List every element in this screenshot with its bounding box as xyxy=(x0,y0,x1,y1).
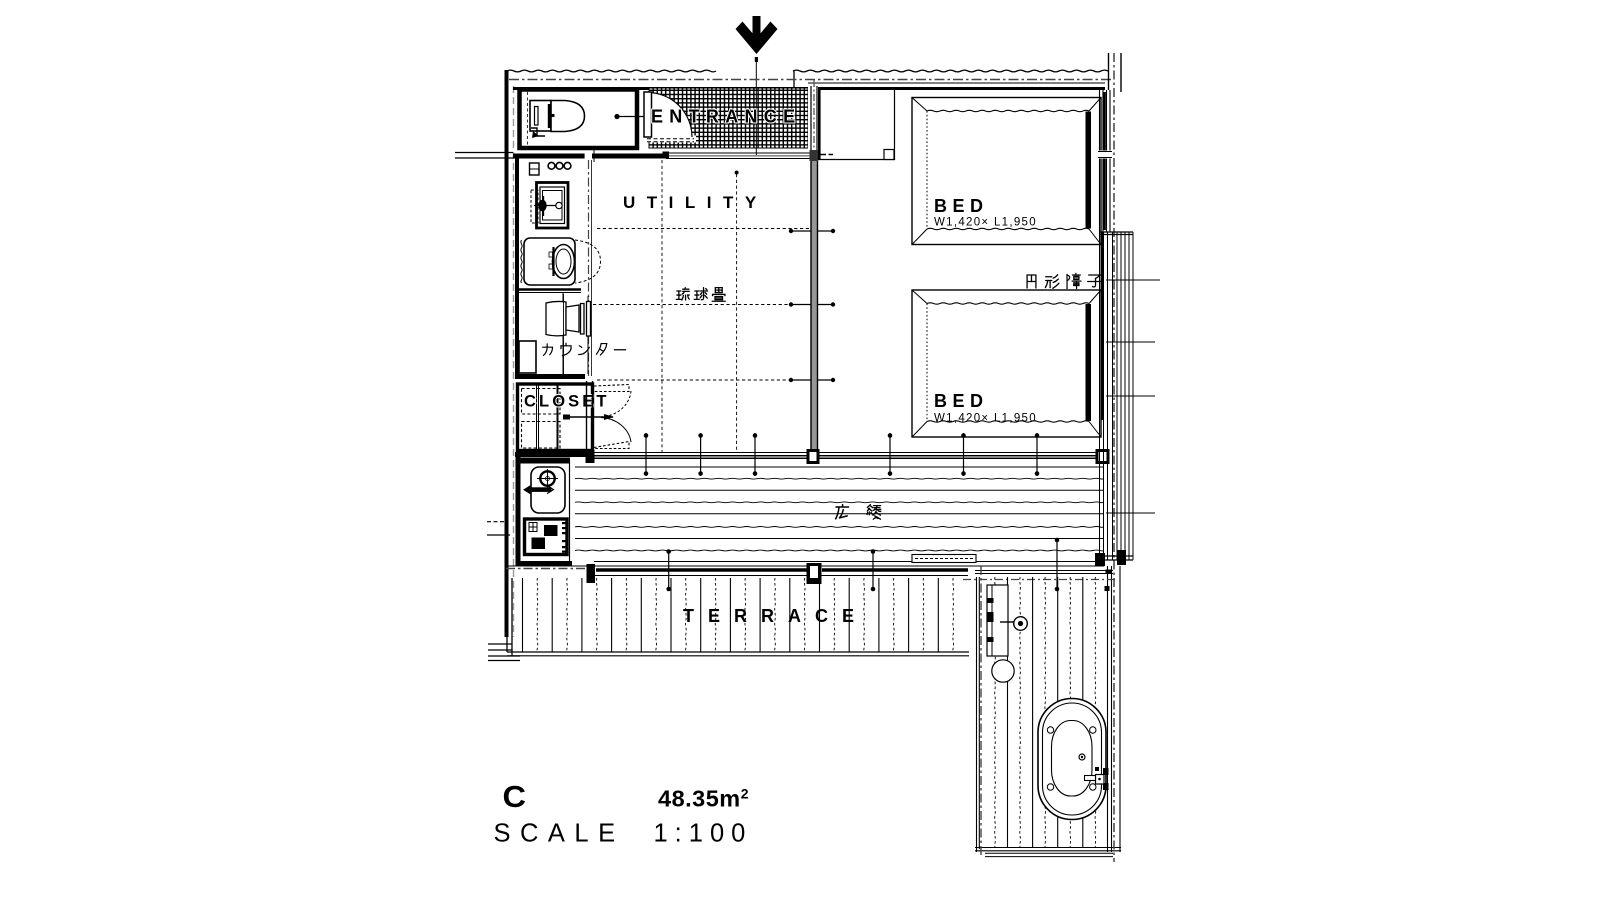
svg-text:BED: BED xyxy=(934,196,989,216)
svg-text:CLOSET: CLOSET xyxy=(524,393,610,411)
svg-text:C: C xyxy=(503,779,527,814)
svg-text:48.35m2: 48.35m2 xyxy=(658,786,749,812)
svg-text:W1,420× L1,950: W1,420× L1,950 xyxy=(934,413,1037,425)
svg-text:W1,420× L1,950: W1,420× L1,950 xyxy=(934,217,1037,229)
svg-text:ENTRANCE: ENTRANCE xyxy=(651,107,801,127)
svg-text:BED: BED xyxy=(934,391,989,411)
svg-text:1:100: 1:100 xyxy=(654,820,753,848)
svg-text:UTILITY: UTILITY xyxy=(623,193,768,212)
svg-text:TERRACE: TERRACE xyxy=(683,606,868,626)
svg-text:SCALE: SCALE xyxy=(494,820,625,848)
